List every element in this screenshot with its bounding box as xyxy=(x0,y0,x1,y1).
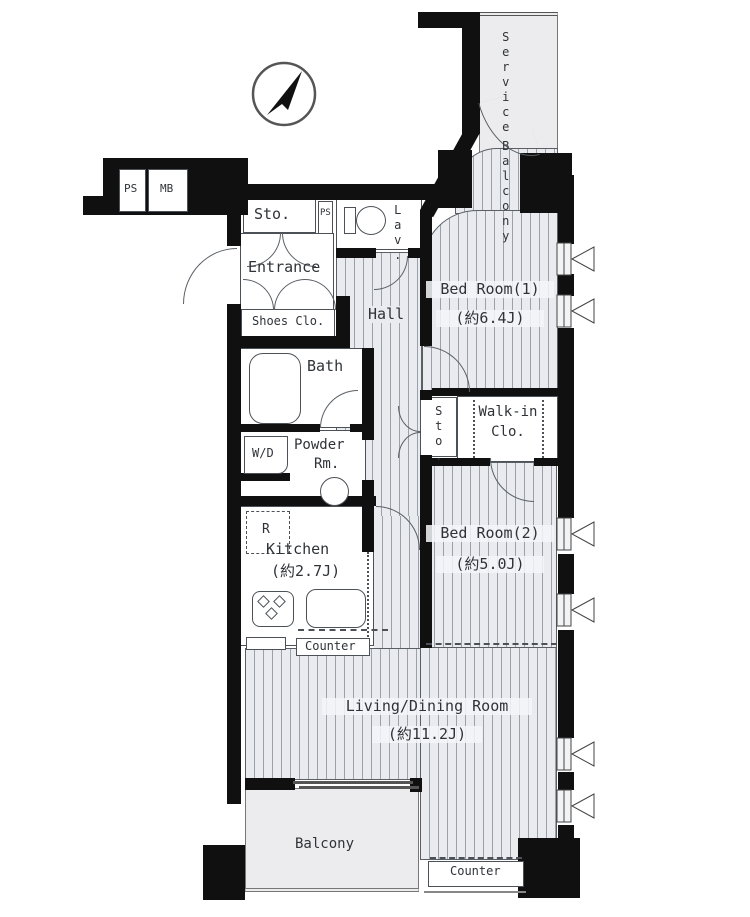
wall xyxy=(438,150,472,208)
wall xyxy=(362,348,374,440)
washer-dryer-label: W/D xyxy=(252,447,274,461)
storage-hall-label: Sto. xyxy=(431,404,445,454)
ps-small-label: PS xyxy=(320,208,331,218)
north-arrow-icon xyxy=(247,57,321,131)
living-size-label: (約11.2J) xyxy=(372,726,482,743)
front-door-arc xyxy=(183,248,237,304)
wall xyxy=(420,210,432,346)
powder-sink xyxy=(320,477,349,506)
wall xyxy=(558,175,574,244)
lavatory-label: Lav. xyxy=(390,203,404,251)
balcony-label: Balcony xyxy=(295,836,354,852)
boundary-line xyxy=(424,891,526,893)
kitchen-counter-label: Counter xyxy=(305,640,356,654)
kitchen-name-label: Kitchen xyxy=(266,541,329,558)
bathtub xyxy=(249,353,301,424)
wall xyxy=(558,630,574,738)
hall-label: Hall xyxy=(366,306,406,323)
wall xyxy=(227,198,241,246)
mb-label: MB xyxy=(160,183,173,196)
powder-label-line2: Rm. xyxy=(314,456,339,472)
divider-bedroom2-living xyxy=(426,643,557,645)
toilet-bowl xyxy=(356,206,386,235)
wall xyxy=(236,496,376,506)
fridge-label: R xyxy=(262,523,270,538)
bedroom1-name-label: Bed Room(1) xyxy=(426,281,554,298)
kitchen-counter-edge xyxy=(298,629,388,631)
service-balcony-word1: Service xyxy=(498,30,512,135)
kitchen-pass-through xyxy=(367,552,369,644)
wall xyxy=(420,455,432,648)
wall xyxy=(534,458,558,466)
kitchen-sink xyxy=(306,589,366,628)
floor-plan: ServiceBalcony PS MB Sto. PS Lav. Entran… xyxy=(0,0,750,917)
kitchen-shelf xyxy=(246,637,286,650)
powder-label-line1: Powder xyxy=(294,437,345,453)
bedroom2-size-label: (約5.0J) xyxy=(436,556,544,573)
wall xyxy=(558,772,574,790)
living-counter-label: Counter xyxy=(450,865,501,879)
wall xyxy=(462,24,480,134)
storage-entry-label: Sto. xyxy=(254,206,290,223)
wall xyxy=(236,424,320,432)
service-balcony-word2: Balcony xyxy=(498,139,512,244)
wall xyxy=(558,274,574,296)
window-icon xyxy=(556,593,598,627)
shoes-closet-label: Shoes Clo. xyxy=(252,315,324,329)
window-icon xyxy=(556,789,598,823)
bath-label: Bath xyxy=(307,358,343,375)
wall xyxy=(558,554,574,594)
wall xyxy=(203,845,245,900)
wall xyxy=(227,304,241,804)
wall xyxy=(558,825,574,897)
wall xyxy=(336,248,376,258)
window-icon xyxy=(556,294,598,328)
balcony-slider xyxy=(299,786,419,789)
wall xyxy=(236,473,290,481)
walkin-label-line2: Clo. xyxy=(462,424,554,440)
toilet-tank xyxy=(344,207,356,234)
wall xyxy=(245,778,295,790)
living-name-label: Living/Dining Room xyxy=(322,698,532,715)
wall xyxy=(83,196,105,215)
ps-label: PS xyxy=(124,183,137,196)
bedroom1-size-label: (約6.4J) xyxy=(436,310,544,327)
entrance-label: Entrance xyxy=(248,259,320,276)
room-living-right xyxy=(420,648,557,860)
living-counter-edge xyxy=(430,857,522,859)
wall xyxy=(362,506,374,552)
wall xyxy=(236,184,438,200)
window-icon xyxy=(556,242,598,276)
service-balcony-label: ServiceBalcony xyxy=(498,30,512,180)
bedroom2-name-label: Bed Room(2) xyxy=(426,525,554,542)
window-icon xyxy=(556,517,598,551)
walkin-label-line1: Walk-in xyxy=(462,404,554,420)
window-icon xyxy=(556,737,598,771)
wall xyxy=(336,296,350,348)
wall xyxy=(558,328,574,518)
balcony-slider xyxy=(293,781,413,784)
kitchen-size-label: (約2.7J) xyxy=(271,563,340,580)
wall xyxy=(236,336,338,348)
